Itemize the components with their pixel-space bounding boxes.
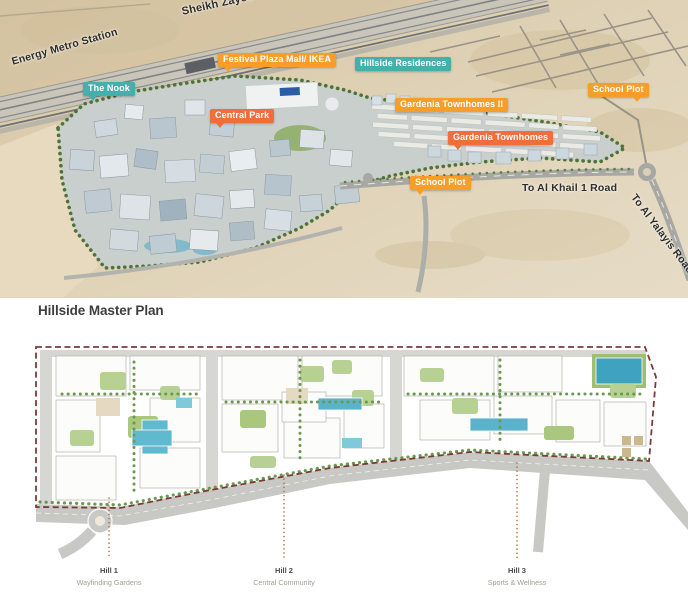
- badge-gardenia-townhomes-2: Gardenia Townhomes II: [395, 98, 508, 112]
- hill-2-subtitle: Central Community: [209, 578, 359, 587]
- hill-1-cluster: [56, 356, 200, 500]
- hill-1-name: Hill 1: [34, 566, 184, 575]
- hill-3-subtitle: Sports & Wellness: [442, 578, 592, 587]
- page: Sheikh Zayed Road Energy Metro Station T…: [0, 0, 688, 600]
- badge-the-nook: The Nook: [83, 82, 135, 96]
- hill-1-subtitle: Wayfinding Gardens: [34, 578, 184, 587]
- aerial-map-illustration: [0, 0, 688, 298]
- label-to-al-khail-road: To Al Khail 1 Road: [522, 182, 617, 194]
- master-plan-illustration: [0, 340, 688, 562]
- hill-3-cluster: [404, 354, 646, 457]
- hill-3-name: Hill 3: [442, 566, 592, 575]
- badge-gardenia-townhomes: Gardenia Townhomes: [448, 131, 553, 145]
- badge-festival-plaza-mall-ikea: Festival Plaza Mall/ IKEA: [218, 53, 336, 67]
- badge-school-plot-east: School Plot: [588, 83, 649, 97]
- hill-2-cluster: [222, 356, 384, 468]
- hill-1-label: Hill 1 Wayfinding Gardens: [34, 566, 184, 587]
- master-plan-title: Hillside Master Plan: [38, 303, 164, 318]
- badge-central-park: Central Park: [210, 109, 274, 123]
- badge-school-plot-central: School Plot: [410, 176, 471, 190]
- festival-plaza-mall: [245, 82, 318, 110]
- badge-hillside-residences: Hillside Residences: [355, 57, 451, 71]
- hill-2-name: Hill 2: [209, 566, 359, 575]
- hill-3-label: Hill 3 Sports & Wellness: [442, 566, 592, 587]
- hill-2-label: Hill 2 Central Community: [209, 566, 359, 587]
